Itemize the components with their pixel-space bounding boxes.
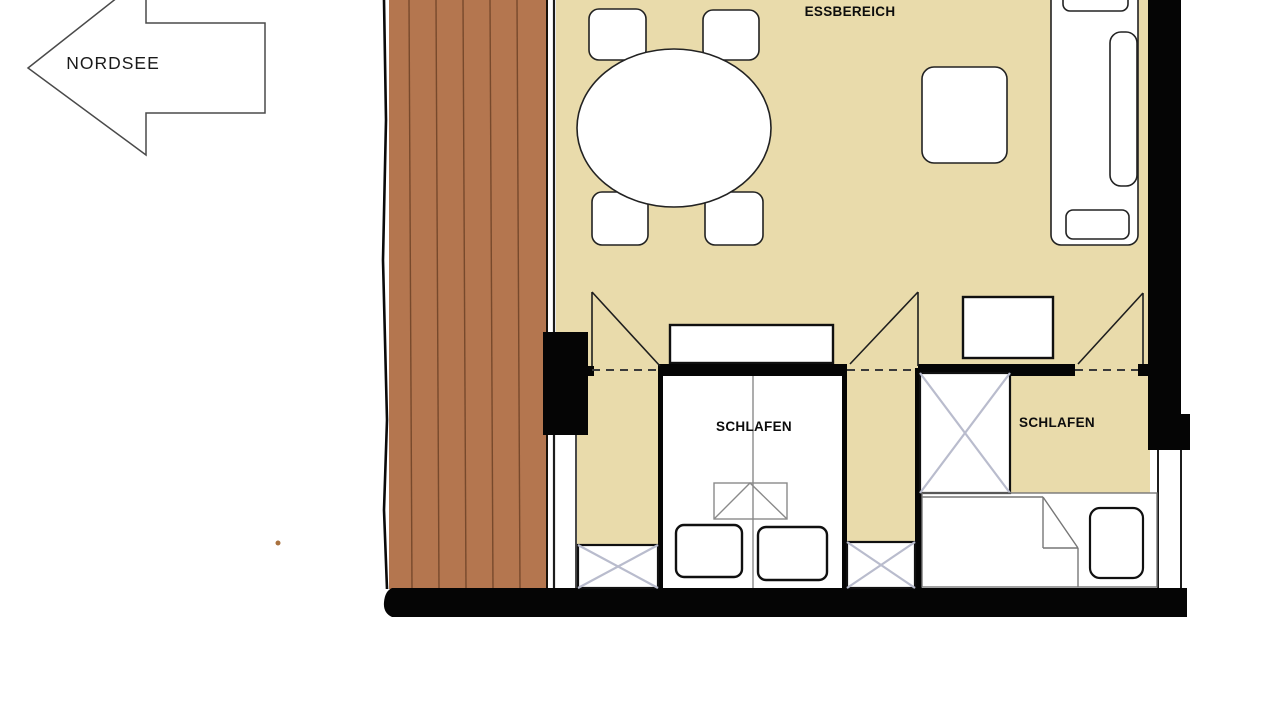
blanket-lines [922, 497, 1078, 587]
closet-corridor [847, 542, 915, 588]
bed-pillow [1090, 508, 1143, 578]
closet-corridor-floor [847, 368, 915, 542]
dining-room-label: ESSBEREICH [805, 4, 896, 19]
bedroom-right-label: SCHLAFEN [1019, 415, 1095, 430]
scan-speckle [276, 541, 281, 546]
deck-outer-sketch-line [383, 0, 387, 589]
wardrobe [920, 373, 1010, 493]
bed-pillow [758, 527, 827, 580]
floor-plan-drawing: NORDSEE [0, 0, 1280, 720]
sofa-pillow [1063, 0, 1128, 11]
bedroom-left-label: SCHLAFEN [716, 419, 792, 434]
right-outer-wall-bump [1176, 414, 1190, 450]
dining-chair [589, 9, 646, 60]
deck-terrace [383, 0, 548, 589]
bedroom-left-floor-upper [588, 368, 658, 435]
bottom-outer-wall [384, 588, 1187, 617]
left-arrow-icon [28, 0, 265, 155]
deck-surface [389, 0, 548, 589]
bedroom-left-floor-lower [577, 435, 658, 545]
sideboard [670, 325, 833, 363]
sofa-pillow [1066, 210, 1129, 239]
dining-table [577, 49, 771, 207]
sideboard [963, 297, 1053, 358]
floor-plan-page: NORDSEE [0, 0, 1280, 720]
compass-label: NORDSEE [66, 53, 160, 73]
sofa-backrest-cushion [1110, 32, 1137, 186]
dining-chair [703, 10, 759, 60]
wardrobe [578, 545, 658, 588]
right-outer-wall [1148, 0, 1181, 450]
wall-segment [658, 364, 847, 376]
armchair [922, 67, 1007, 163]
nordsee-arrow: NORDSEE [28, 0, 265, 155]
wall-block-left [543, 332, 588, 435]
bed-pillow [676, 525, 742, 577]
